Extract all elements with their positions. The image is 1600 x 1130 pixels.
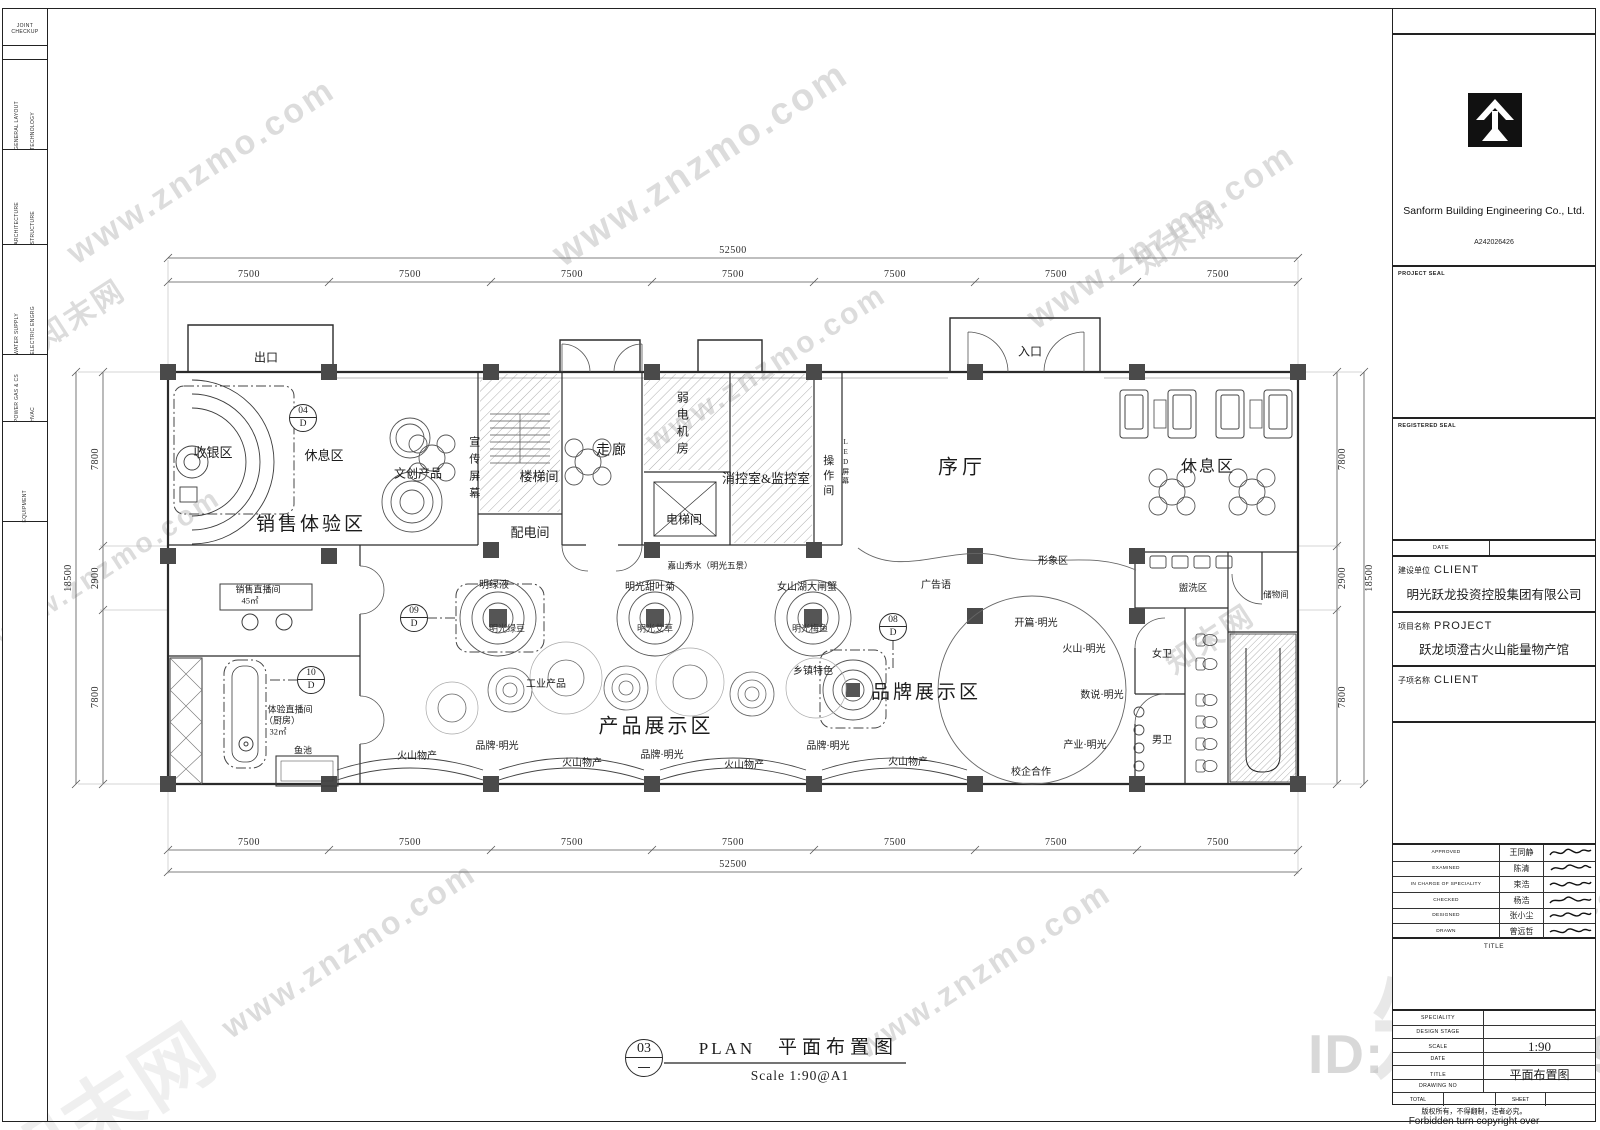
dim-bay: 7500 [722,838,744,849]
label-live-exp-kitchen: （厨房） [264,716,300,725]
label-slogan: 广告语 [921,581,951,592]
dim-total-width: 52500 [719,860,747,871]
grid-bubble-letter: D [298,680,324,692]
drawing-no-value [1483,1080,1595,1093]
label-entrance: 入口 [1018,346,1042,359]
blank-box [1392,722,1596,844]
shaft-cross-hatch [170,658,202,784]
sign-role: DESIGNED [1393,909,1499,924]
sign-name: 张小尘 [1499,909,1543,924]
signature-scribble [1543,845,1595,861]
project-value: 跃龙顷澄古火山能量物产馆 [1393,639,1595,658]
client-label-cn: 建设单位 [1398,566,1430,575]
label-sales-zone: 销售体验区 [256,515,366,535]
label-corridor: 走廊 [596,445,628,460]
titleblock-logo-box: Sanform Building Engineering Co., Ltd. A… [1392,34,1596,266]
label-huoshan: 火山·明光 [1062,645,1105,656]
label-rest-right: 休息区 [1181,460,1235,477]
sign-role: DRAWN [1393,924,1499,939]
dim-bay: 7500 [561,838,583,849]
checkup-label: WATER SUPPLY [14,313,20,355]
grid-bubble-08: 08 D [879,613,907,641]
label-shushuo: 数说·明光 [1080,691,1123,702]
signature-row: DRAWN 曾远哲 [1393,923,1595,939]
dim-bay: 7500 [238,270,260,281]
label-led-screen: LED屏幕 [841,438,848,486]
bottom-table: SPECIALITY DESIGN STAGE SCALE 1:90 DATE … [1392,1010,1596,1105]
grid-bubble-letter: D [401,618,427,630]
bottom-row: SCALE 1:90 [1393,1038,1595,1052]
checkup-label: GENERAL LAYOUT [14,101,20,150]
dim-bay: 7500 [1045,270,1067,281]
checkup-label: ARCHITECTURE [14,202,20,245]
design-stage-label: DESIGN STAGE [1393,1026,1483,1039]
company-name: Sanform Building Engineering Co., Ltd. [1393,205,1595,217]
signature-scribble [1543,924,1595,939]
registered-seal-box: REGISTERED SEAL [1392,418,1596,540]
sign-name: 杨浩 [1499,893,1543,908]
dim-bay: 7500 [399,838,421,849]
label-brand-zone: 品牌展示区 [871,683,981,703]
plan-number-bubble: 03 [625,1039,663,1077]
bottom-row: DATE [1393,1052,1595,1066]
checkup-label: POWER GAS & CS [14,374,20,422]
floor-plan-linework [0,0,1600,1130]
checkup-section: POWER GAS & CS HVAC [3,354,47,425]
label-live-exp: 体验直播间 [267,705,312,714]
total-label: TOTAL [1393,1093,1443,1106]
label-product-zone: 产品展示区 [599,717,714,738]
sheet-label: SHEET [1495,1093,1545,1106]
checkup-label: ELECTRIC ENGRG [30,306,36,355]
label-power-room: 配电间 [510,526,549,540]
sign-role: CHECKED [1393,893,1499,908]
sheet-value [1545,1093,1597,1106]
sign-role: EXAMINED [1393,862,1499,877]
sign-name: 王同静 [1499,845,1543,861]
grid-bubble-num: 08 [880,614,906,627]
dim-seg: 7800 [1338,448,1349,470]
label-live-sales-area: 45㎡ [241,597,258,606]
dim-total-height: 18500 [1365,564,1376,592]
date-label: DATE [1393,541,1489,555]
grid-bubble-num: 10 [298,667,324,680]
dim-total-width: 52500 [719,246,747,257]
client-label-en: CLIENT [1434,564,1479,576]
label-lobby: 序厅 [938,458,986,479]
checkup-section: EQUIPMENT [3,421,47,525]
label-meiyu: 明光梅鱼 [792,624,828,633]
checkup-label: STRUCTURE [30,211,36,245]
speciality-label: SPECIALITY [1393,1011,1483,1025]
label-rest-left: 休息区 [304,449,343,463]
signature-row: CHECKED 杨浩 [1393,892,1595,908]
dim-bay: 7500 [1207,270,1229,281]
label-fish-pond: 鱼池 [294,746,312,755]
bottom-row: SPECIALITY [1393,1011,1595,1025]
subproject-label-en: CLIENT [1434,674,1479,686]
lobby-sofas [1120,390,1292,438]
signature-row: IN CHARGE OF SPECIALITY 束浩 [1393,876,1595,892]
sign-name: 曾远哲 [1499,924,1543,939]
plan-number-dash [626,1058,662,1074]
project-seal-label: PROJECT SEAL [1398,271,1445,277]
dim-bay: 7500 [722,270,744,281]
label-live-sales: 销售直播间 [235,585,280,594]
label-storage: 储物间 [1263,591,1289,600]
label-elevator: 电梯间 [666,514,702,527]
label-brand-mg: 品牌·明光 [475,742,518,753]
dim-seg: 7800 [91,686,102,708]
checkup-label: EQUIPMENT [22,490,28,522]
dim-seg: 7800 [1338,686,1349,708]
grid-bubble-10: 10 D [297,666,325,694]
titleblock-top-box [1392,8,1596,34]
label-low-voltage: 弱电机房 [676,391,689,459]
label-brand-mg: 品牌·明光 [806,742,849,753]
project-label-en: PROJECT [1434,620,1492,632]
label-green-bean: 明光绿豆 [489,624,525,633]
checkup-label: HVAC [30,407,36,422]
signature-scribble [1543,862,1595,877]
grid-bubble-letter: D [290,418,316,430]
dim-seg: 2900 [91,567,102,589]
signature-table: APPROVED 王同静 EXAMINED 陈清 IN CHARGE OF SP… [1392,844,1596,938]
label-fire-monitor: 消控室&监控室 [722,472,810,486]
plan-title-cn: 平面布置图 [778,1038,898,1058]
design-stage-value [1483,1026,1595,1039]
plan-number: 03 [626,1040,662,1058]
checkup-section [3,521,47,1125]
elevator-cab [654,482,716,536]
signature-row: APPROVED 王同静 [1393,845,1595,861]
dim-bay: 7500 [399,270,421,281]
date2-label: DATE [1393,1053,1483,1066]
checkup-label: TECHNOLOGY [30,112,36,150]
title-box: TITLE [1392,938,1596,1010]
label-volcano: 火山物产 [562,759,602,770]
signature-row: EXAMINED 陈清 [1393,861,1595,877]
bottom-row: TITLE 平面布置图 [1393,1065,1595,1079]
signature-scribble [1543,909,1595,924]
label-chanye: 产业·明光 [1063,741,1106,752]
dim-seg: 2900 [1338,567,1349,589]
dim-bay: 7500 [238,838,260,849]
client-box: 建设单位 CLIENT 明光跃龙投资控股集团有限公司 [1392,556,1596,612]
dim-total-height: 18500 [64,564,75,592]
label-sweet-leaf: 明光甜叶菊 [625,583,675,594]
checkup-section: WATER SUPPLY ELECTRIC ENGRG [3,244,47,358]
sign-name: 陈清 [1499,862,1543,877]
sign-role: APPROVED [1393,845,1499,861]
registered-seal-label: REGISTERED SEAL [1398,423,1456,429]
grid-bubble-09: 09 D [400,604,428,632]
label-exit: 出口 [254,352,278,365]
bottom-row: TOTAL SHEET [1393,1092,1595,1106]
copyright-cn: 版权所有，不得翻制，违者必究。 [1422,1108,1527,1115]
dim-bay: 7500 [884,270,906,281]
client-value: 明光跃龙投资控股集团有限公司 [1393,584,1595,603]
plan-scale-note: Scale 1:90@A1 [751,1069,850,1083]
date2-value [1483,1053,1595,1066]
date-value [1489,541,1595,555]
signature-scribble [1543,893,1595,908]
label-township: 乡镇特色 [793,667,833,678]
sign-role: IN CHARGE OF SPECIALITY [1393,877,1499,892]
dim-seg: 7800 [91,448,102,470]
drawing-no-label: DRAWING NO [1393,1080,1483,1093]
checkup-section: GENERAL LAYOUT TECHNOLOGY [3,45,47,153]
plan-title-en: PLAN [699,1040,755,1058]
title-box-label: TITLE [1393,939,1595,950]
grid-bubble-letter: D [880,627,906,639]
sign-name: 束浩 [1499,877,1543,892]
label-brand-mg: 品牌·明光 [640,751,683,762]
label-kaipian: 开篇·明光 [1014,619,1057,630]
signature-scribble [1543,877,1595,892]
joint-checkup-strip: JOINT CHECKUP GENERAL LAYOUT TECHNOLOGY … [2,8,48,1122]
company-number: A242026426 [1393,239,1595,246]
label-male-wc: 男卫 [1152,736,1172,747]
label-live-exp-area: 32㎡ [269,728,286,737]
copyright-en: Forbidden turn copyright over [1409,1117,1540,1128]
label-cultural: 文创产品 [394,468,442,481]
subproject-box: 子项名称 CLIENT [1392,666,1596,722]
label-female-wc: 女卫 [1152,650,1172,661]
project-seal-box: PROJECT SEAL [1392,266,1596,418]
date-row: DATE [1392,540,1596,556]
dim-bay: 7500 [1045,838,1067,849]
company-logo [1468,93,1522,152]
label-stair: 楼梯间 [519,470,558,484]
label-volcano: 火山物产 [397,752,437,763]
grid-bubble-04: 04 D [289,404,317,432]
bottom-row: DRAWING NO [1393,1079,1595,1093]
total-value [1443,1093,1495,1106]
product-displays [426,580,883,734]
bottom-row: DESIGN STAGE [1393,1025,1595,1039]
subproject-label-cn: 子项名称 [1398,676,1430,685]
dim-bay: 7500 [561,270,583,281]
project-box: 项目名称 PROJECT 跃龙顷澄古火山能量物产馆 [1392,612,1596,666]
label-promo-screen: 宣传屏幕 [467,436,479,504]
label-cashier: 收银区 [193,446,232,460]
label-wash: 盥洗区 [1179,585,1208,595]
grid-bubble-num: 09 [401,605,427,618]
label-volcano: 火山物产 [888,758,928,769]
label-school-coop: 校企合作 [1011,768,1051,779]
project-label-cn: 项目名称 [1398,622,1430,631]
label-crab: 女山湖大闸蟹 [777,583,837,594]
label-landscape: 嘉山秀水（明光五景） [667,562,752,571]
signature-row: DESIGNED 张小尘 [1393,908,1595,924]
label-operation: 操作间 [821,455,833,500]
drawing-sheet: www.znzmo.com 知末网 www.znzmo.com www.znzm… [0,0,1600,1130]
grid-bubble-num: 04 [290,405,316,418]
label-volcano: 火山物产 [724,761,764,772]
checkup-section: ARCHITECTURE STRUCTURE [3,149,47,248]
dim-bay: 7500 [884,838,906,849]
label-minglvye: 明绿液 [479,581,509,592]
label-image-zone: 形象区 [1038,557,1068,568]
label-aicao: 明光艾草 [637,624,673,633]
label-industrial: 工业产品 [526,680,566,691]
speciality-value [1483,1011,1595,1025]
dim-bay: 7500 [1207,838,1229,849]
